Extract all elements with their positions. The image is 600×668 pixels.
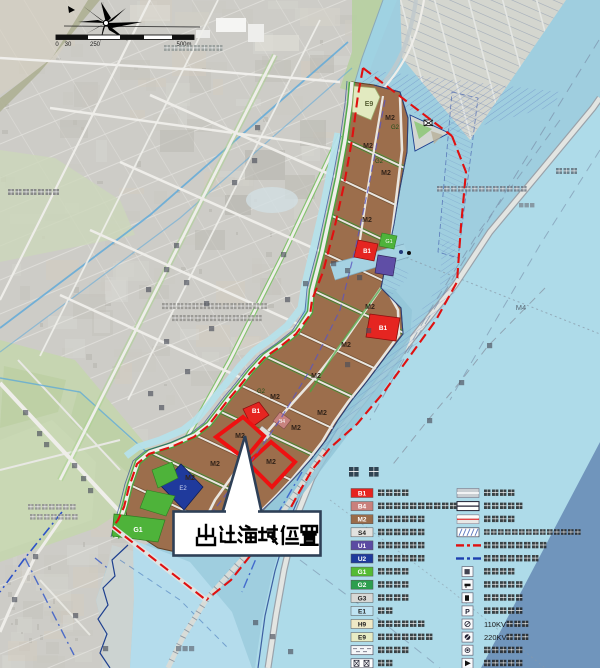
svg-text:M4: M4 [516, 303, 526, 312]
svg-text:M2: M2 [363, 143, 373, 150]
svg-text:B1: B1 [379, 325, 388, 332]
svg-text:220KV: 220KV [484, 633, 507, 642]
svg-text:H9: H9 [358, 622, 367, 629]
svg-text:E1: E1 [358, 608, 366, 615]
svg-text:M2: M2 [362, 217, 372, 224]
svg-text:M2: M2 [311, 373, 321, 380]
svg-text:M2: M2 [357, 517, 366, 524]
svg-text:B1: B1 [252, 408, 261, 415]
svg-text:G2: G2 [391, 125, 400, 131]
svg-text:M2: M2 [317, 410, 327, 417]
svg-text:M2: M2 [365, 304, 375, 311]
svg-text:G3: G3 [358, 595, 367, 602]
svg-text:B4: B4 [358, 504, 367, 511]
svg-text:E2: E2 [179, 486, 187, 492]
svg-text:G2: G2 [375, 159, 384, 165]
svg-text:M2: M2 [291, 425, 301, 432]
svg-text:B1: B1 [363, 249, 371, 255]
svg-text:S4: S4 [358, 530, 366, 537]
svg-text:G1: G1 [358, 569, 367, 576]
svg-text:B4: B4 [279, 419, 285, 425]
svg-text:M2: M2 [210, 461, 220, 468]
svg-text:M2: M2 [185, 475, 195, 482]
svg-text:B1: B1 [358, 491, 367, 498]
svg-text:P: P [465, 609, 470, 616]
svg-text:M2: M2 [341, 342, 351, 349]
svg-text:G1: G1 [133, 527, 142, 534]
svg-text:M2: M2 [266, 459, 276, 466]
svg-text:250: 250 [90, 42, 101, 48]
svg-text:U1: U1 [358, 543, 367, 550]
svg-text:110KV: 110KV [484, 620, 506, 629]
svg-text:G2: G2 [257, 389, 266, 395]
svg-text:M2: M2 [381, 170, 391, 177]
svg-text:U2: U2 [358, 556, 367, 563]
svg-text:M2: M2 [385, 115, 395, 122]
svg-text:E9: E9 [358, 635, 366, 642]
svg-text:G2: G2 [358, 582, 367, 589]
svg-text:M2: M2 [270, 394, 280, 401]
svg-text:G1: G1 [385, 239, 392, 245]
svg-text:E9: E9 [365, 101, 374, 108]
svg-text:30: 30 [65, 42, 72, 48]
